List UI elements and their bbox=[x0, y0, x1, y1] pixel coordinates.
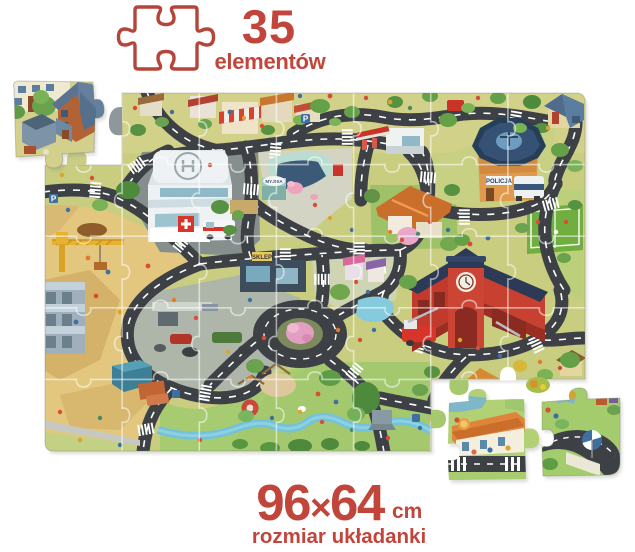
svg-text:SKLEP: SKLEP bbox=[252, 255, 272, 261]
svg-text:P: P bbox=[303, 115, 309, 124]
svg-text:35: 35 bbox=[242, 0, 296, 53]
svg-text:MYJNIA: MYJNIA bbox=[265, 179, 283, 184]
svg-text:P: P bbox=[51, 195, 57, 204]
svg-text:cm: cm bbox=[392, 500, 422, 523]
svg-text:elementów: elementów bbox=[215, 49, 327, 74]
svg-text:rozmiar układanki: rozmiar układanki bbox=[252, 525, 426, 548]
